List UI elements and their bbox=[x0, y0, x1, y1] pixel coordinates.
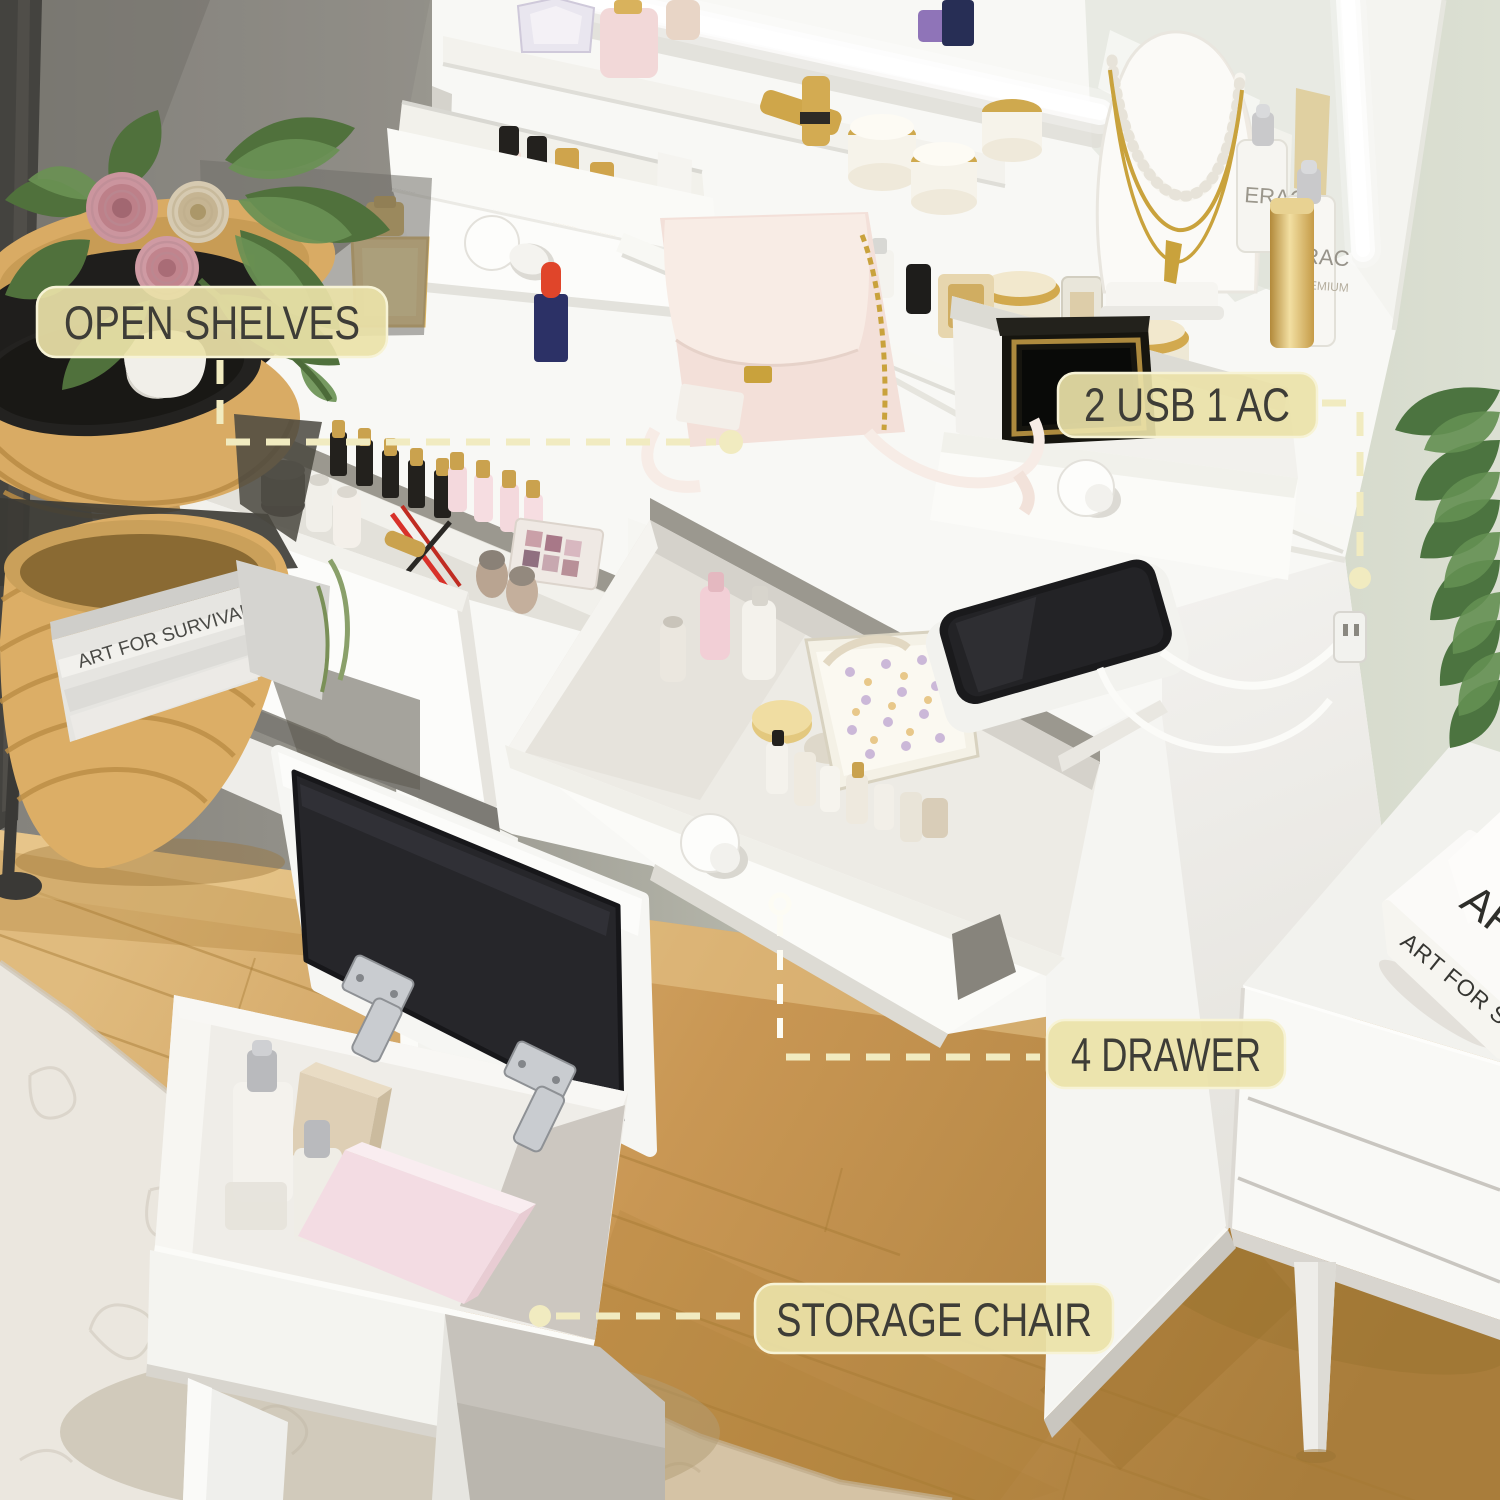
svg-text:OPEN SHELVES: OPEN SHELVES bbox=[64, 296, 360, 349]
svg-text:STORAGE CHAIR: STORAGE CHAIR bbox=[776, 1293, 1092, 1346]
svg-text:4 DRAWER: 4 DRAWER bbox=[1071, 1028, 1261, 1081]
svg-text:2 USB 1 AC: 2 USB 1 AC bbox=[1084, 378, 1290, 431]
